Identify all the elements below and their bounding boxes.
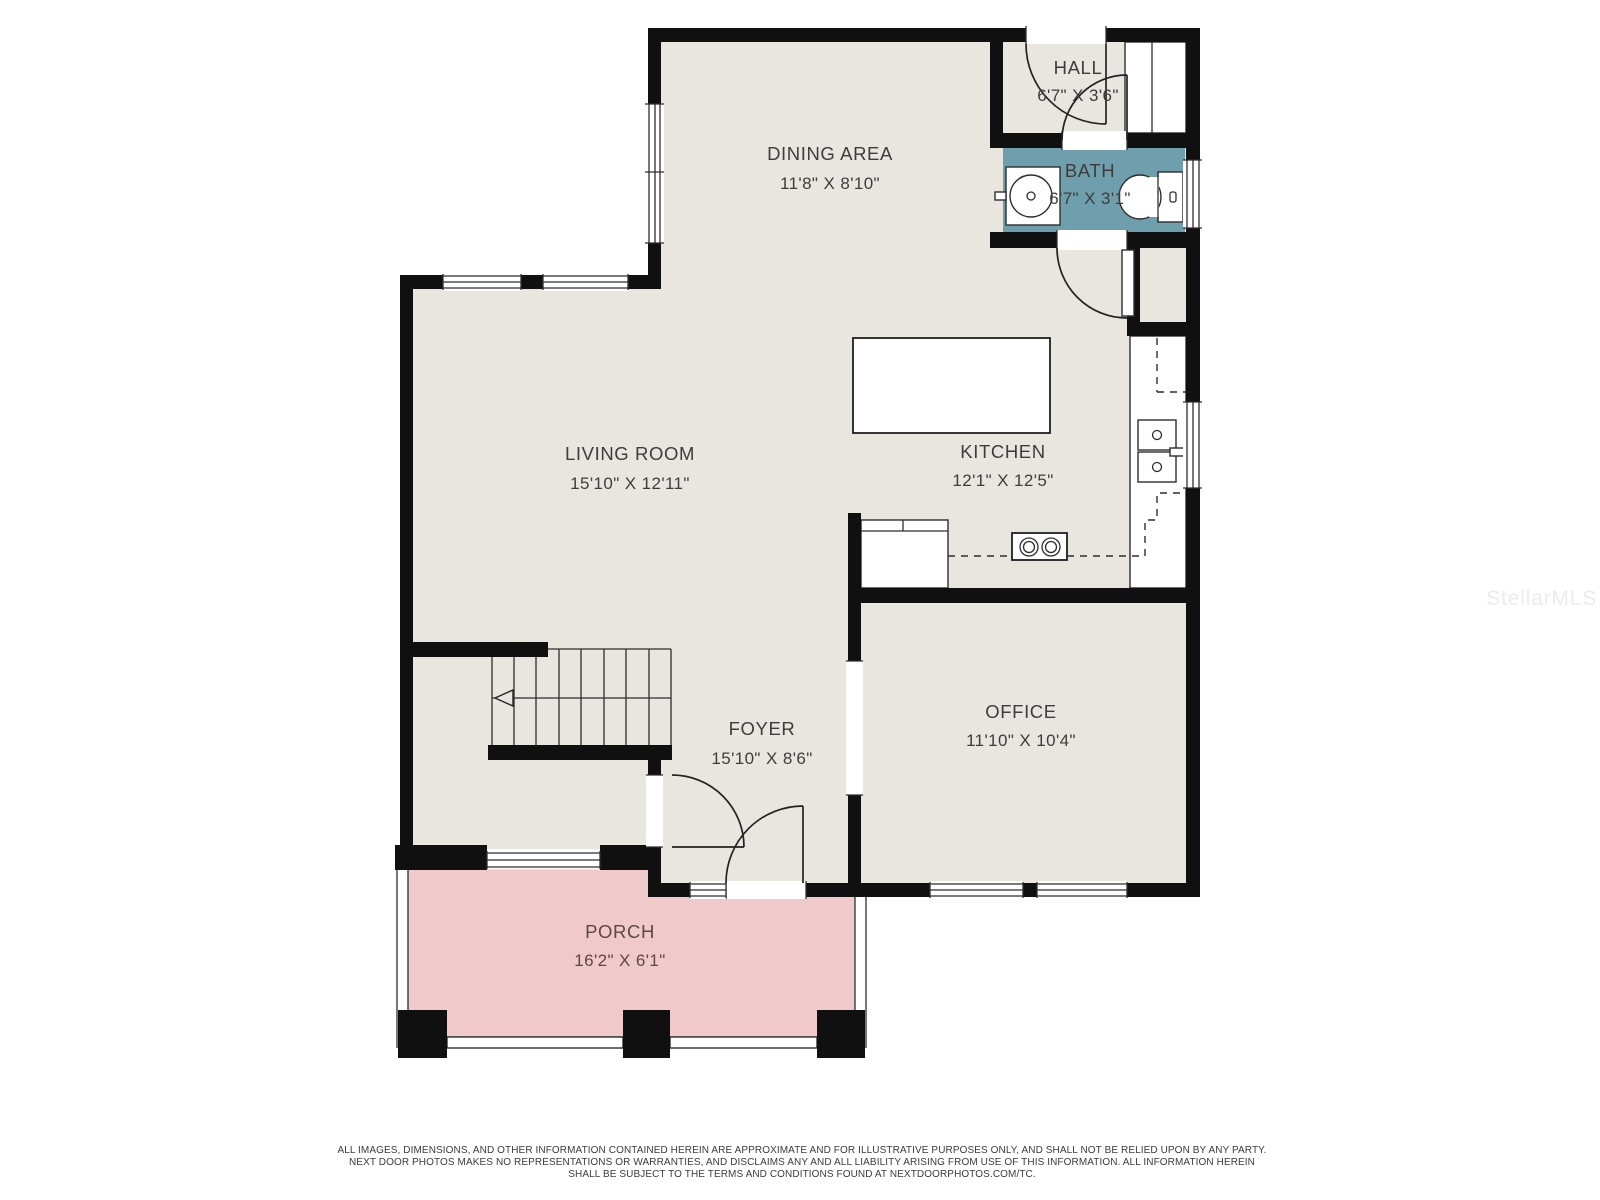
dining-dims: 11'8" X 8'10" (780, 174, 880, 193)
living-dims: 15'10" X 12'11" (570, 474, 690, 493)
window-living-2 (543, 273, 628, 291)
hall-closet (1125, 42, 1186, 133)
watermark: StellarMLS (1486, 587, 1597, 610)
floor-plan-page: DINING AREA 11'8" X 8'10" HALL 6'7" X 3'… (0, 0, 1600, 1200)
window-foyer-sidelite (690, 881, 726, 899)
office-name: OFFICE (985, 701, 1056, 722)
cooktop (1012, 533, 1067, 560)
hall-dims: 6'7" X 3'6" (1037, 86, 1119, 105)
window-dining-left (645, 104, 664, 243)
window-bath-right (1183, 160, 1202, 228)
bath-name: BATH (1065, 160, 1115, 181)
kitchen-name: KITCHEN (960, 441, 1045, 462)
refrigerator (861, 520, 948, 588)
floor-plan-svg: DINING AREA 11'8" X 8'10" HALL 6'7" X 3'… (0, 0, 1600, 1200)
porch-dims: 16'2" X 6'1" (574, 951, 665, 970)
window-bottom-left (487, 849, 600, 869)
window-kitchen-right (1183, 402, 1202, 488)
window-office-1 (930, 881, 1023, 899)
disclaimer-line-3: SHALL BE SUBJECT TO THE TERMS AND CONDIT… (568, 1169, 1036, 1180)
kitchen-island (853, 338, 1050, 433)
porch-name: PORCH (585, 921, 655, 942)
kitchen-dims: 12'1" X 12'5" (952, 471, 1053, 490)
foyer-dims: 15'10" X 8'6" (711, 749, 812, 768)
disclaimer-line-1: ALL IMAGES, DIMENSIONS, AND OTHER INFORM… (337, 1145, 1266, 1156)
window-office-2 (1037, 881, 1127, 899)
dining-name: DINING AREA (767, 143, 893, 164)
foyer-name: FOYER (729, 718, 796, 739)
living-name: LIVING ROOM (565, 443, 695, 464)
bath-dims: 6'7" X 3'1" (1049, 189, 1131, 208)
disclaimer-line-2: NEXT DOOR PHOTOS MAKES NO REPRESENTATION… (349, 1157, 1255, 1168)
disclaimer: ALL IMAGES, DIMENSIONS, AND OTHER INFORM… (337, 1145, 1266, 1180)
watermark-text: StellarMLS (1486, 587, 1597, 610)
office-dims: 11'10" X 10'4" (966, 731, 1076, 750)
hall-name: HALL (1054, 57, 1103, 78)
window-living-1 (443, 273, 521, 291)
